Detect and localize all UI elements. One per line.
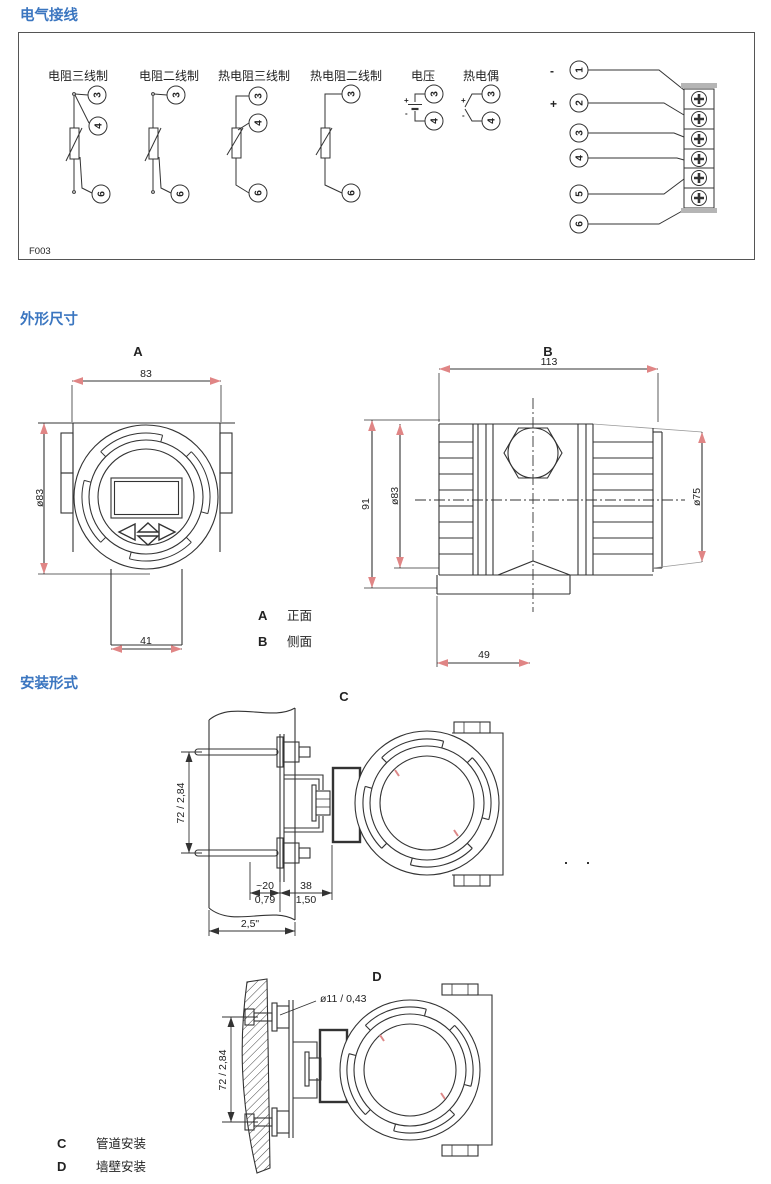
terminal-number: 4 — [254, 120, 265, 126]
right-ribs — [593, 442, 653, 554]
block-cap-bottom — [681, 208, 717, 213]
terminal-number: 6 — [254, 190, 265, 196]
dim-text-diameter: ø83 — [389, 487, 401, 505]
terminal-number: 4 — [430, 118, 441, 124]
thermal-rtd-2wire-diagram — [316, 85, 360, 202]
dim-text-width: 113 — [541, 356, 558, 368]
housing — [355, 722, 503, 886]
terminal-number: 5 — [575, 191, 586, 197]
u-bolt-top — [195, 737, 310, 767]
diagram-label: 电压 — [411, 69, 435, 83]
legend-key: B — [258, 634, 267, 649]
wall — [242, 979, 270, 1173]
wiring-frame: 电阻三线制 电阻二线制 热电阻三线制 热电阻二线制 电压 热电偶 3 4 6 3… — [18, 32, 755, 260]
dim-text-pipe-offset-mm: ~20 — [256, 880, 274, 892]
terminal-number: 3 — [254, 93, 265, 99]
terminal-number: 6 — [176, 191, 187, 197]
mounting-legend: C 管道安装 D 墙壁安装 — [57, 1136, 146, 1174]
terminal-number: 4 — [487, 118, 498, 124]
minus-sign: - — [405, 109, 408, 118]
view-d-label: D — [372, 969, 381, 984]
view-c-label: C — [339, 689, 349, 704]
minus-sign: - — [462, 111, 465, 120]
view-d-wall-mounting: D ø11 / 0,43 72 / 2,84 — [217, 969, 492, 1173]
plus-sign: + — [461, 96, 466, 105]
legend-key: D — [57, 1159, 66, 1174]
dim-text-height: 91 — [360, 498, 372, 510]
legend-value: 正面 — [287, 609, 312, 623]
terminal-number: 3 — [172, 92, 183, 98]
dim-text-bracket-depth-mm: 38 — [300, 880, 312, 892]
terminal-number: 3 — [487, 91, 498, 97]
mounting-bracket — [289, 1000, 321, 1138]
view-legend: A 正面 B 侧面 — [258, 608, 312, 649]
rtd-2wire-diagram — [145, 86, 189, 203]
terminal-number: 6 — [97, 191, 108, 197]
dim-text-neck: 41 — [140, 635, 152, 647]
dim-text-hole-diameter: ø11 / 0,43 — [320, 993, 367, 1005]
left-ribs — [439, 442, 473, 554]
terminal-number: 3 — [430, 91, 441, 97]
minus-sign: - — [550, 64, 554, 78]
diagram-label: 热电偶 — [463, 69, 499, 83]
terminal-number: 4 — [575, 155, 586, 161]
u-bolt-bottom — [195, 838, 310, 868]
legend-value: 侧面 — [287, 635, 312, 649]
dim-text-bracket-depth-in: 1,50 — [296, 894, 317, 906]
stray-dot — [565, 862, 567, 864]
rtd-3wire-diagram — [66, 86, 110, 203]
block-cap-top — [681, 83, 717, 88]
dim-text-diameter: ø83 — [34, 489, 46, 507]
thermal-rtd-3wire-diagram — [227, 87, 267, 202]
dim-text-pipe-size: 2,5" — [241, 918, 260, 930]
center-bolt — [316, 791, 330, 815]
terminal-number: 4 — [94, 123, 105, 129]
terminal-number: 6 — [575, 221, 586, 227]
mounting-bracket — [280, 734, 330, 882]
plus-sign: + — [404, 96, 409, 105]
dim-text-conduit: 49 — [478, 649, 490, 661]
legend-key: C — [57, 1136, 67, 1151]
terminal-block — [681, 83, 717, 213]
terminal-number: 2 — [575, 100, 586, 106]
legend-value: 管道安装 — [96, 1136, 146, 1151]
terminal-number: 3 — [575, 130, 586, 136]
legend-key: A — [258, 608, 268, 623]
dim-text-bolt-spacing: 72 / 2,84 — [175, 782, 187, 823]
dims-c — [181, 752, 332, 936]
terminal-number-circles — [570, 61, 684, 233]
terminal-number: 3 — [93, 92, 104, 98]
diagram-label: 电阻二线制 — [139, 69, 199, 83]
view-a-label: A — [133, 344, 143, 359]
figure-code: F003 — [29, 246, 51, 257]
dim-text-pipe-offset-in: 0,79 — [255, 894, 276, 906]
diagram-label: 热电阻三线制 — [218, 69, 290, 83]
terminal-number: 1 — [575, 67, 586, 73]
manual-page: 电气接线 — [0, 0, 771, 1184]
pipe — [209, 708, 295, 920]
view-b-side: B 113 91 ø83 ø75 49 — [360, 344, 703, 667]
stray-dot — [587, 862, 589, 864]
hole-leader-line — [280, 1001, 316, 1015]
section-title-wiring: 电气接线 — [20, 4, 78, 25]
wiring-diagram: 电阻三线制 电阻二线制 热电阻三线制 热电阻二线制 电压 热电偶 3 4 6 3… — [19, 33, 754, 259]
plus-sign: + — [550, 97, 557, 111]
dimension-drawing: A 83 ø83 41 — [0, 300, 771, 670]
legend-value: 墙壁安装 — [96, 1159, 146, 1174]
mounting-drawing: C 72 / 2,84 ~20 0,79 38 1,50 2,5" — [0, 670, 771, 1184]
diagram-label: 电阻三线制 — [48, 69, 108, 83]
dim-text-width: 83 — [140, 368, 152, 380]
terminal-number: 3 — [347, 91, 358, 97]
terminal-number: 6 — [347, 190, 358, 196]
view-a-front: A 83 ø83 41 — [34, 344, 235, 649]
dim-text-bolt-spacing: 72 / 2,84 — [217, 1049, 229, 1090]
diagram-label: 热电阻二线制 — [310, 69, 382, 83]
dim-text-rear-diameter: ø75 — [691, 488, 703, 506]
view-c-pipe-mounting: C 72 / 2,84 ~20 0,79 38 1,50 2,5" — [175, 689, 589, 936]
housing — [340, 984, 492, 1156]
